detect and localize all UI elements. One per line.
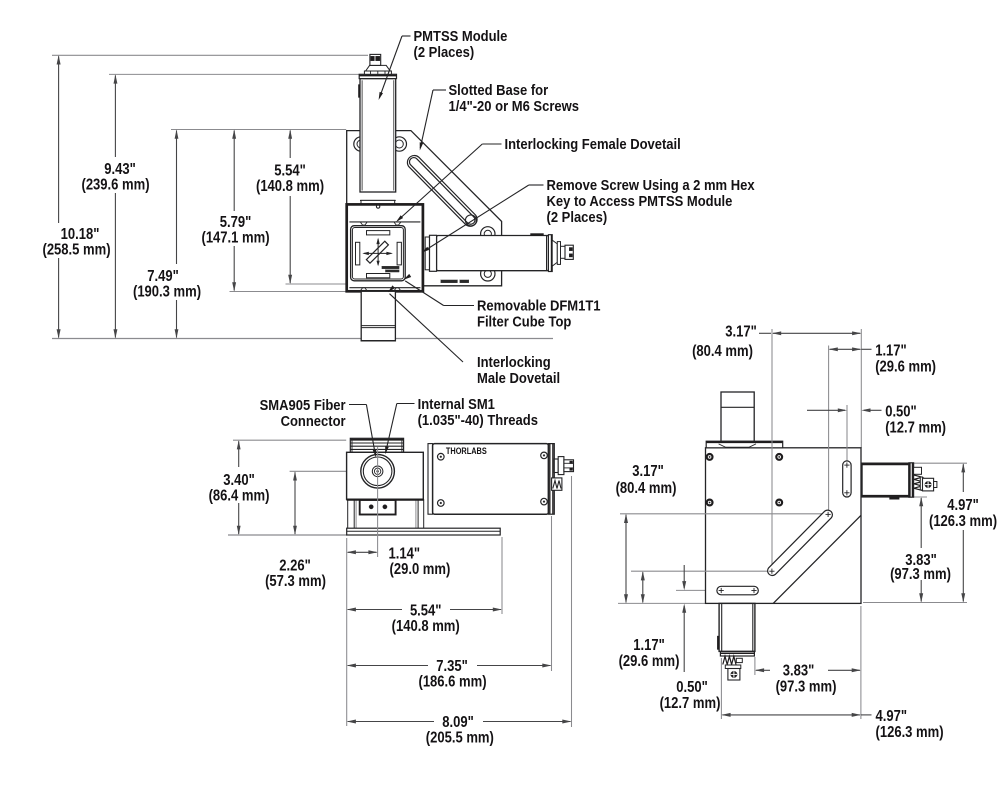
svg-text:1.17": 1.17" <box>633 637 665 655</box>
svg-text:(29.6 mm): (29.6 mm) <box>875 358 936 376</box>
svg-text:Interlocking Female Dovetail: Interlocking Female Dovetail <box>505 135 681 152</box>
svg-text:SMA905 Fiber: SMA905 Fiber <box>260 396 346 413</box>
svg-text:4.97": 4.97" <box>876 708 908 726</box>
svg-text:3.17": 3.17" <box>725 323 757 341</box>
svg-text:Filter Cube Top: Filter Cube Top <box>477 312 572 329</box>
svg-text:(1.035"-40) Threads: (1.035"-40) Threads <box>418 411 538 428</box>
svg-text:(12.7 mm): (12.7 mm) <box>660 695 721 713</box>
svg-text:1/4"-20 or M6 Screws: 1/4"-20 or M6 Screws <box>449 97 580 114</box>
svg-text:(239.6 mm): (239.6 mm) <box>81 176 149 194</box>
svg-text:Removable DFM1T1: Removable DFM1T1 <box>477 296 601 313</box>
svg-text:Key to Access PMTSS Module: Key to Access PMTSS Module <box>547 192 733 209</box>
svg-text:(258.5 mm): (258.5 mm) <box>42 241 110 259</box>
svg-text:(2 Places): (2 Places) <box>547 208 608 225</box>
svg-text:(80.4 mm): (80.4 mm) <box>616 480 677 498</box>
svg-text:Male Dovetail: Male Dovetail <box>477 369 560 386</box>
svg-text:(126.3 mm): (126.3 mm) <box>929 513 997 531</box>
svg-text:1.17": 1.17" <box>875 342 907 360</box>
svg-text:4.97": 4.97" <box>947 497 979 515</box>
svg-text:THORLABS: THORLABS <box>446 445 487 456</box>
svg-text:PMTSS Module: PMTSS Module <box>414 27 508 44</box>
svg-text:(140.8 mm): (140.8 mm) <box>392 618 460 636</box>
svg-text:(2 Places): (2 Places) <box>414 43 475 60</box>
svg-text:Interlocking: Interlocking <box>477 353 551 370</box>
svg-text:(57.3 mm): (57.3 mm) <box>265 573 326 591</box>
svg-text:(86.4 mm): (86.4 mm) <box>209 487 270 505</box>
svg-text:(29.0 mm): (29.0 mm) <box>390 561 451 579</box>
svg-text:Internal SM1: Internal SM1 <box>418 395 495 412</box>
svg-text:Connector: Connector <box>281 412 346 429</box>
svg-text:3.17": 3.17" <box>632 463 664 481</box>
svg-text:(186.6 mm): (186.6 mm) <box>418 674 486 692</box>
svg-text:(80.4 mm): (80.4 mm) <box>692 343 753 361</box>
svg-text:(29.6 mm): (29.6 mm) <box>619 653 680 671</box>
svg-text:(205.5 mm): (205.5 mm) <box>426 730 494 748</box>
svg-text:0.50": 0.50" <box>676 679 708 697</box>
svg-text:(12.7 mm): (12.7 mm) <box>885 419 946 437</box>
svg-text:(147.1 mm): (147.1 mm) <box>201 229 269 247</box>
svg-text:(190.3 mm): (190.3 mm) <box>133 283 201 301</box>
svg-text:3.83": 3.83" <box>783 662 815 680</box>
svg-text:(97.3 mm): (97.3 mm) <box>890 566 951 584</box>
svg-text:(97.3 mm): (97.3 mm) <box>776 678 837 696</box>
svg-text:Slotted Base for: Slotted Base for <box>449 81 549 98</box>
svg-text:(140.8 mm): (140.8 mm) <box>256 178 324 196</box>
svg-text:Remove Screw Using a 2 mm Hex: Remove Screw Using a 2 mm Hex <box>547 176 755 193</box>
svg-text:(126.3 mm): (126.3 mm) <box>876 724 944 742</box>
svg-text:0.50": 0.50" <box>885 403 917 421</box>
